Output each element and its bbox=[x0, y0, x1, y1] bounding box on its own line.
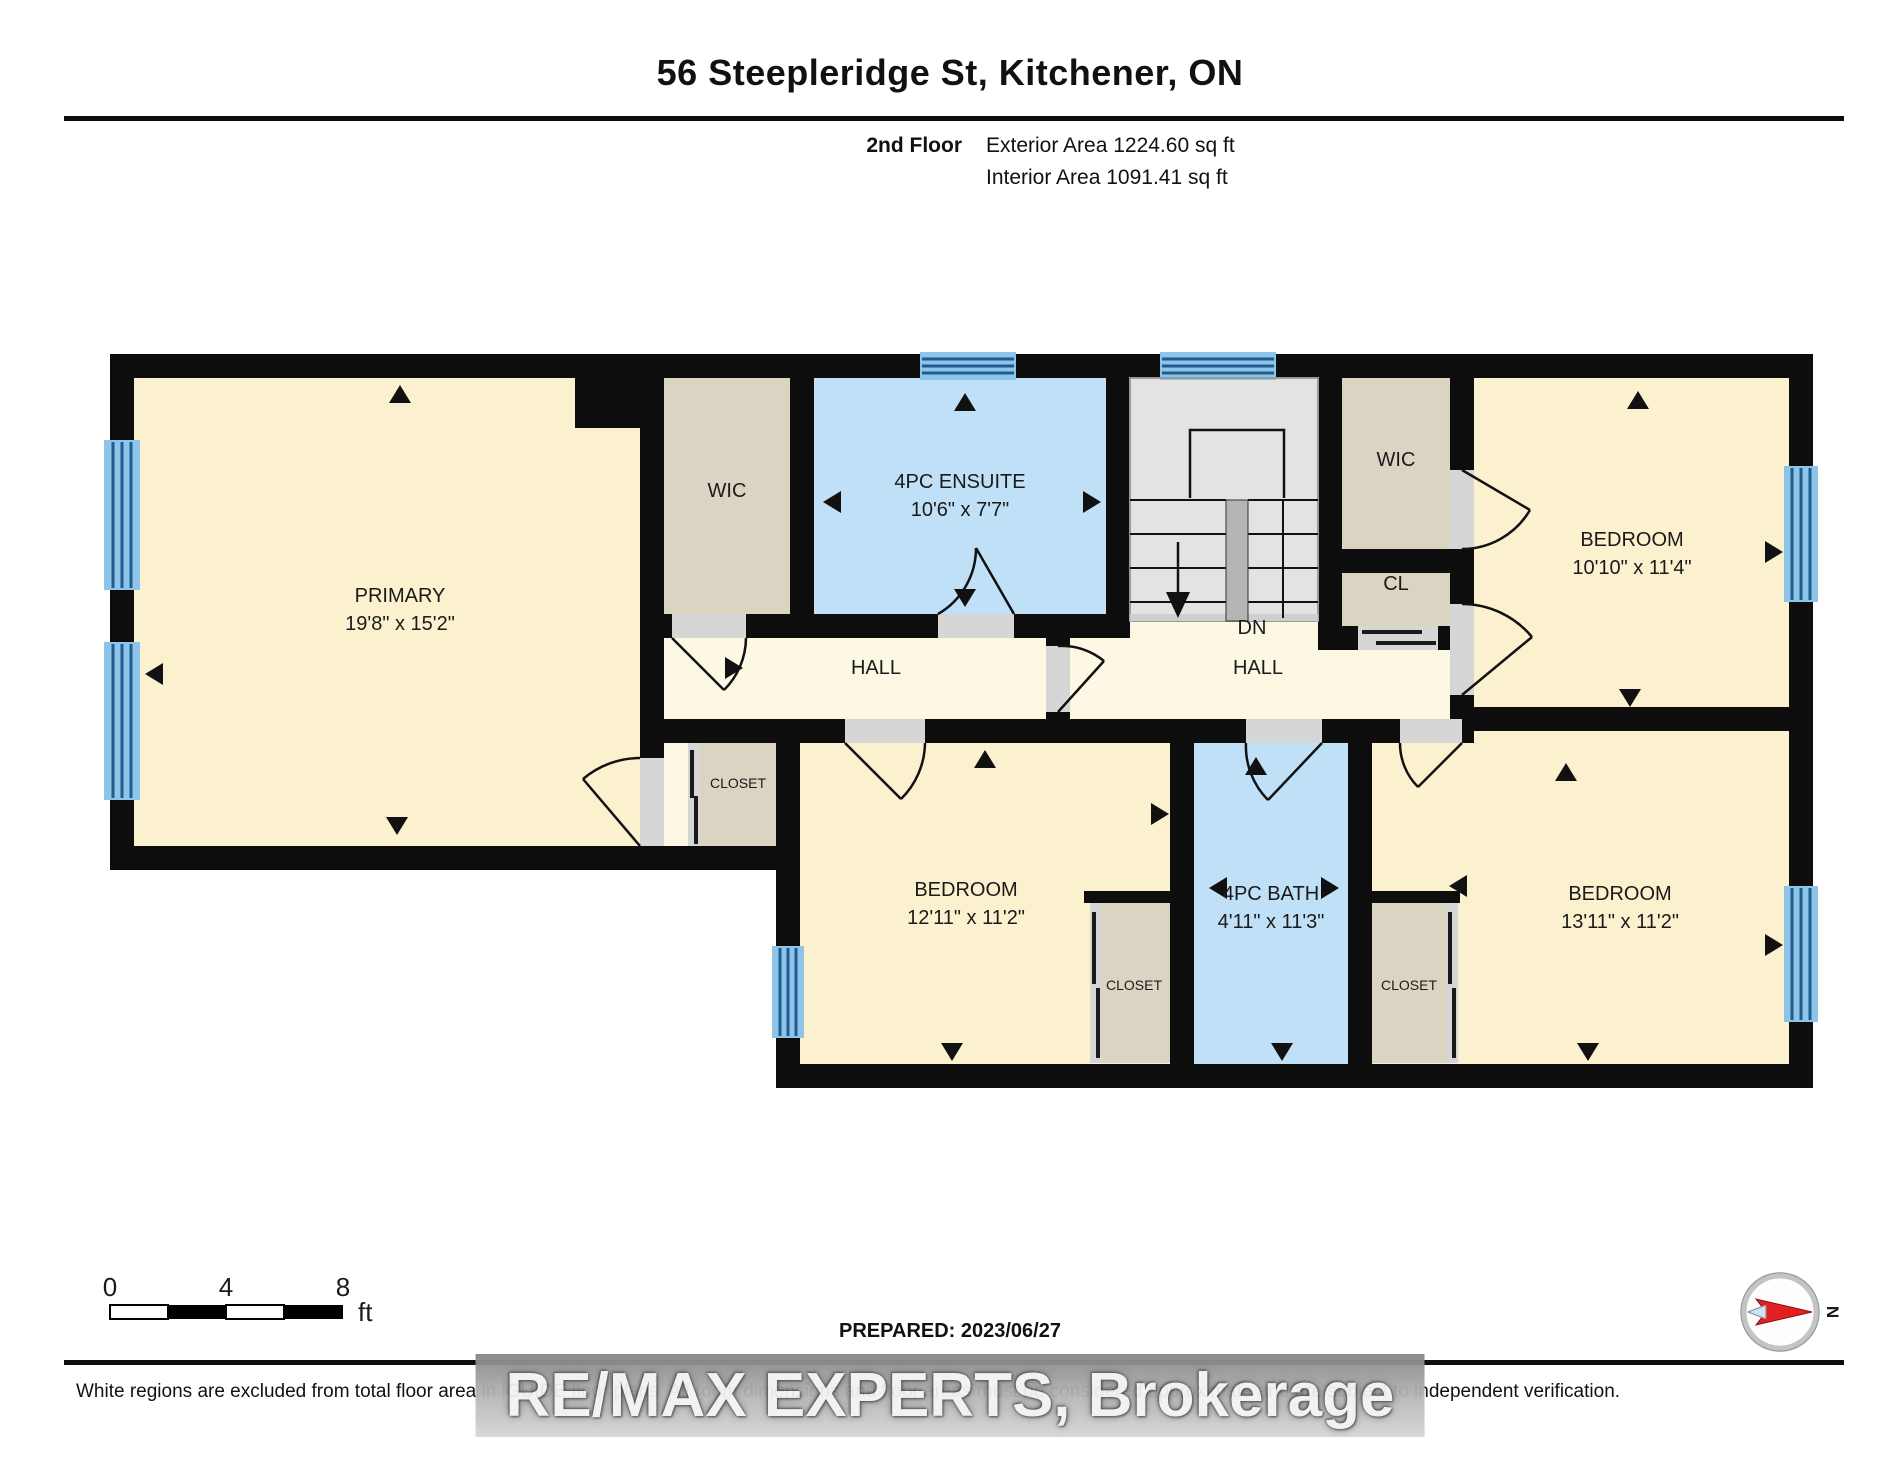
label-bedroom-tr: BEDROOM bbox=[1580, 529, 1683, 551]
window bbox=[920, 352, 1016, 380]
room-closet-hall bbox=[688, 743, 776, 846]
label-closet-right: CLOSET bbox=[1381, 977, 1437, 993]
room-ensuite bbox=[814, 378, 1106, 614]
scale-tick-0: 0 bbox=[103, 1272, 117, 1302]
label-hall-left: HALL bbox=[851, 657, 901, 679]
label-dn: DN bbox=[1238, 617, 1267, 639]
label-cl: CL bbox=[1383, 573, 1409, 595]
label-wic-right: WIC bbox=[1377, 449, 1416, 471]
scale-tick-4: 4 bbox=[219, 1272, 233, 1302]
window bbox=[1160, 352, 1276, 380]
compass-north-label: N bbox=[1823, 1306, 1842, 1318]
label-closet-left: CLOSET bbox=[1106, 977, 1162, 993]
room-primary bbox=[134, 378, 640, 846]
label-primary: PRIMARY bbox=[355, 585, 446, 607]
brokerage-watermark: RE/MAX EXPERTS, Brokerage bbox=[476, 1354, 1425, 1437]
scale-tick-8: 8 bbox=[336, 1272, 350, 1302]
label-hall-right: HALL bbox=[1233, 657, 1283, 679]
window bbox=[104, 440, 140, 590]
window bbox=[1784, 886, 1818, 1022]
label-ensuite: 4PC ENSUITE bbox=[894, 471, 1025, 493]
label-bath: 4PC BATH bbox=[1223, 883, 1319, 905]
window bbox=[104, 642, 140, 800]
label-bedroom-br-dims: 13'11" x 11'2" bbox=[1561, 911, 1679, 933]
label-ensuite-dims: 10'6" x 7'7" bbox=[911, 499, 1010, 521]
window bbox=[772, 946, 804, 1038]
label-closet-hall: CLOSET bbox=[710, 775, 766, 791]
label-primary-dims: 19'8" x 15'2" bbox=[345, 613, 455, 635]
prepared-date: PREPARED: 2023/06/27 bbox=[0, 1320, 1900, 1343]
label-bath-dims: 4'11" x 11'3" bbox=[1218, 911, 1325, 933]
label-wic-primary: WIC bbox=[708, 480, 747, 502]
label-bedroom-bm: BEDROOM bbox=[914, 879, 1017, 901]
label-bedroom-tr-dims: 10'10" x 11'4" bbox=[1572, 557, 1691, 579]
scale-bar: 0 4 8 ft bbox=[103, 1272, 373, 1327]
label-bedroom-bm-dims: 12'11" x 11'2" bbox=[907, 907, 1025, 929]
floor-plan: PRIMARY 19'8" x 15'2" WIC 4PC ENSUITE 10… bbox=[0, 0, 1900, 1468]
label-bedroom-br: BEDROOM bbox=[1568, 883, 1671, 905]
window bbox=[1784, 466, 1818, 602]
